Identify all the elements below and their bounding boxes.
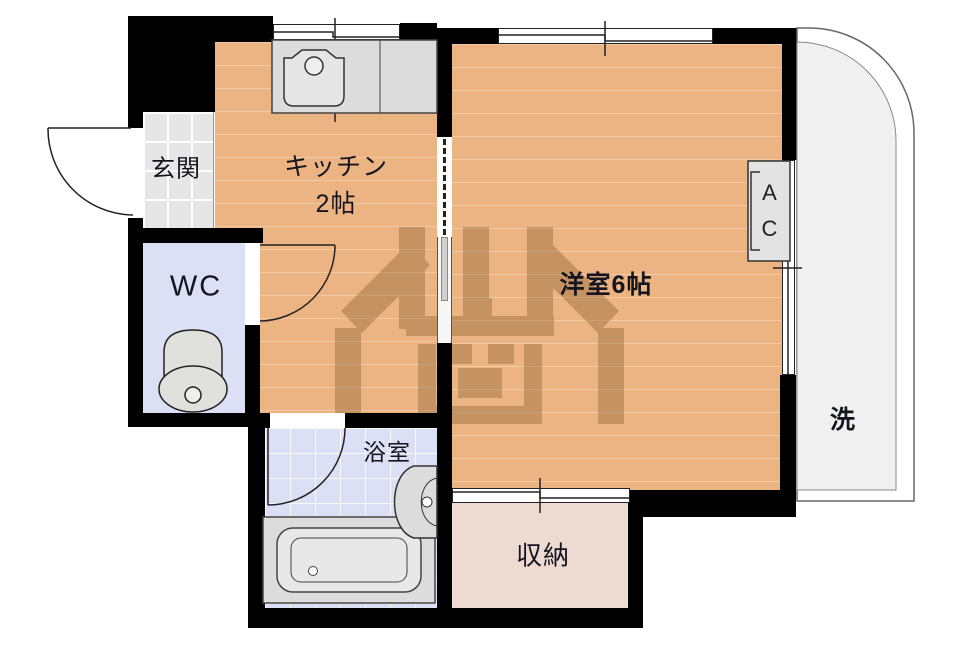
bathroom-floor xyxy=(265,428,437,608)
wall-segment xyxy=(782,28,797,160)
bathroom-label: 浴室 xyxy=(363,433,411,467)
wc-floor xyxy=(143,243,245,413)
entrance-door-opening xyxy=(128,128,143,218)
storage-label: 収納 xyxy=(516,536,570,573)
kitchen-label-size: 2帖 xyxy=(284,186,388,223)
ac-label-a: A xyxy=(762,175,779,211)
wall-segment xyxy=(128,110,143,128)
wall-segment xyxy=(400,23,437,42)
floor-plan: 玄関 キッチン 2帖 WC 洋室6帖 浴室 収納 洗 A C xyxy=(0,0,960,649)
living-room-window-top xyxy=(498,28,713,44)
wall-segment xyxy=(437,28,452,137)
wall-segment xyxy=(245,325,260,427)
wall-segment xyxy=(128,16,215,112)
wall-segment xyxy=(128,228,263,243)
kitchen-living-opening xyxy=(437,137,452,237)
living-room-label: 洋室6帖 xyxy=(560,265,653,301)
kitchen-label: キッチン 2帖 xyxy=(284,149,388,223)
entrance-door xyxy=(48,128,133,215)
living-room-window-right xyxy=(782,160,795,375)
storage-sliding-door xyxy=(452,488,630,503)
kitchen-window xyxy=(273,24,400,40)
ac-label: A C xyxy=(762,175,779,247)
kitchen-label-name: キッチン xyxy=(284,149,388,186)
ac-label-c: C xyxy=(762,211,779,247)
wall-segment xyxy=(630,490,796,517)
wall-segment xyxy=(345,413,437,428)
bathroom-door-opening xyxy=(270,413,345,428)
wall-segment xyxy=(248,413,265,628)
kitchen-living-sliding-panel xyxy=(437,237,452,343)
genkan-label: 玄関 xyxy=(151,149,201,184)
wc-door-opening xyxy=(245,243,260,325)
wall-segment xyxy=(128,243,143,427)
laundry-label: 洗 xyxy=(830,400,856,436)
wall-segment xyxy=(437,343,452,628)
wc-label: WC xyxy=(170,271,222,304)
wall-segment xyxy=(128,413,263,427)
